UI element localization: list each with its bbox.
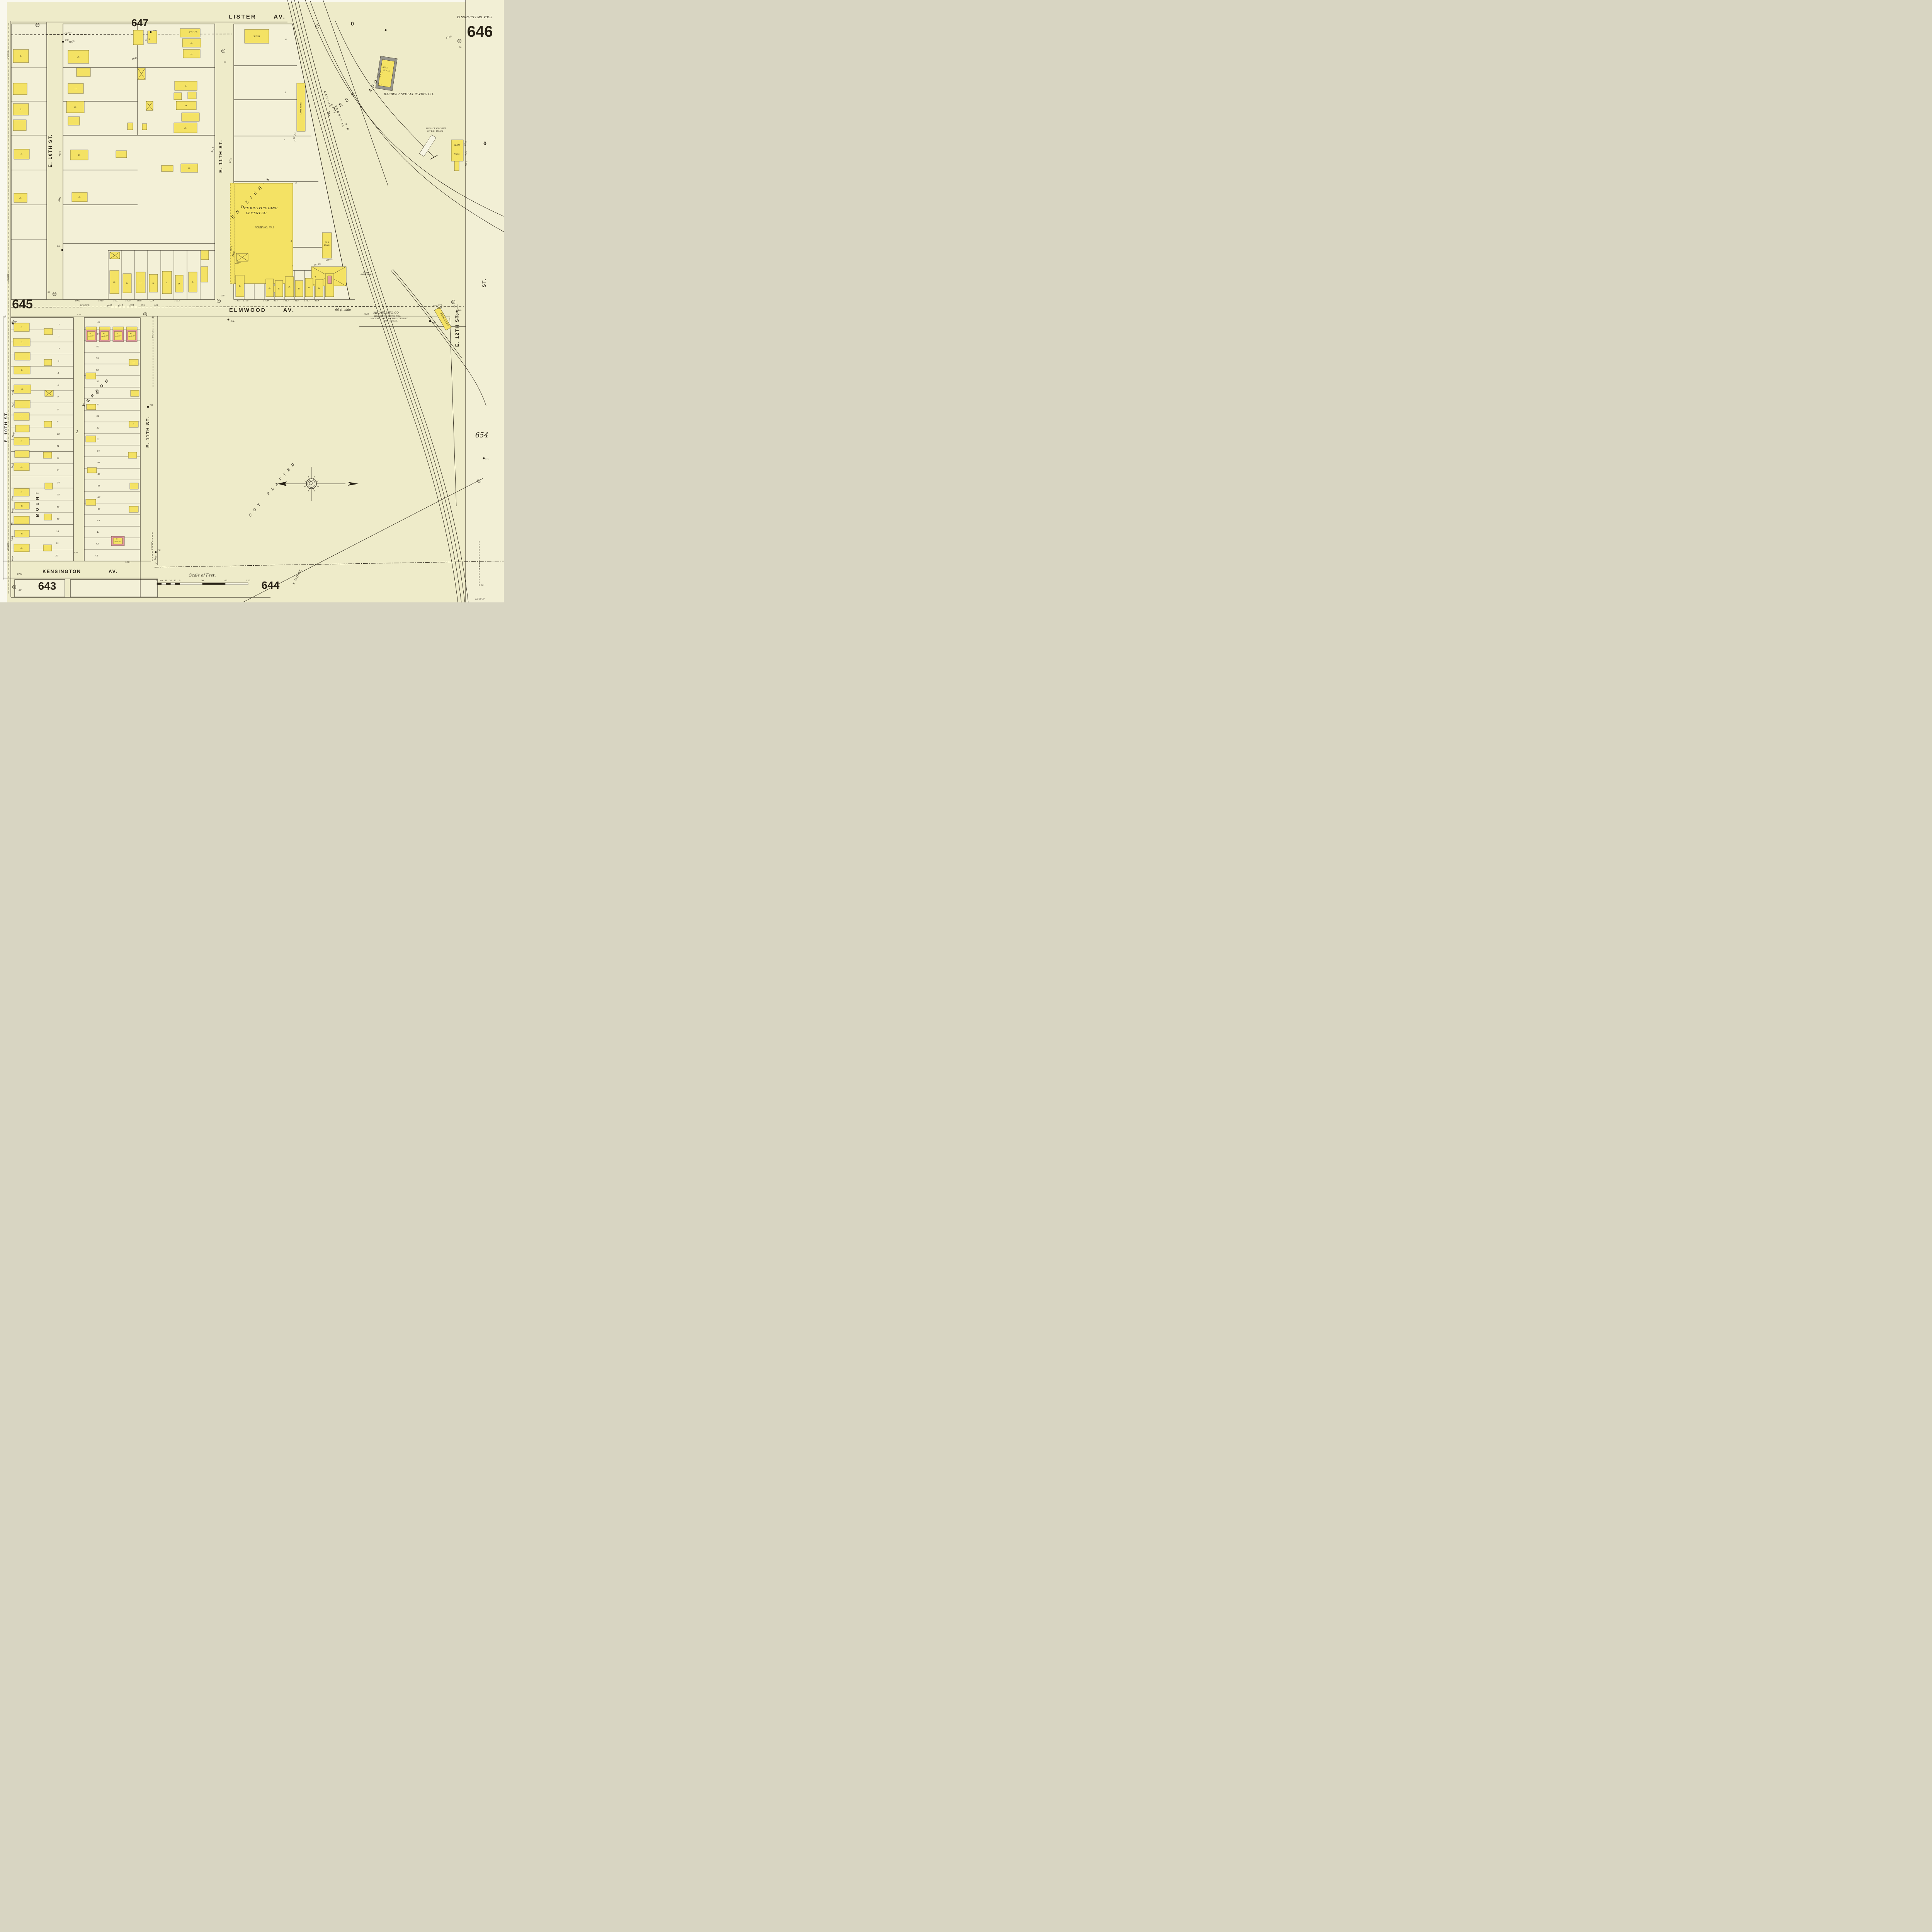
building-use-label: D. — [74, 106, 77, 109]
building — [15, 352, 30, 360]
map-label: T.H. — [458, 309, 462, 311]
map-label: 60 ft.wide — [335, 308, 351, 311]
map-label: 8 — [57, 409, 59, 411]
map-label: D. — [116, 332, 118, 334]
block-outline — [63, 24, 215, 299]
building-use-label: D. — [78, 196, 81, 199]
street-e11th-lower: E. 11TH ST. — [146, 417, 150, 448]
building — [230, 183, 235, 284]
map-label: MOUNT — [36, 489, 40, 517]
map-label: 50 — [224, 61, 226, 63]
hydrant-dot — [147, 406, 149, 408]
svg-text:50: 50 — [201, 580, 204, 582]
building-use-label: D. — [20, 369, 23, 372]
building-use-label: D. — [20, 466, 23, 468]
map-label: 50 — [48, 291, 50, 294]
building — [128, 123, 133, 130]
map-label: 2 — [290, 240, 292, 243]
svg-text:150: 150 — [246, 580, 250, 582]
map-label: ASPHALT MACHINE — [425, 128, 446, 130]
map-label: 6"W.PIPE. — [7, 51, 9, 59]
building-use-label: D. — [191, 281, 194, 284]
street-e11th-upper: E. 11TH ST. — [218, 139, 223, 173]
map-label: 50 — [97, 462, 100, 464]
map-label: COAL SHED — [300, 102, 302, 114]
map-label: 45 — [97, 520, 100, 522]
map-label: 47 — [97, 497, 100, 499]
building — [86, 327, 97, 330]
building-use-label: D. — [188, 167, 190, 170]
building — [162, 165, 173, 172]
hydrant-dot — [150, 31, 152, 33]
map-label: 49 — [97, 473, 100, 476]
building-use-label: D. — [20, 533, 23, 535]
map-label: 1 — [58, 324, 60, 326]
street-lister: LISTER — [229, 14, 256, 20]
map-label: 1033 — [174, 300, 180, 302]
map-label: 50' — [151, 316, 155, 319]
building-use-label: D. — [184, 85, 187, 87]
building — [43, 545, 52, 551]
map-label: D.H. — [153, 30, 158, 32]
map-label: T.H. — [157, 549, 161, 552]
map-label: A — [294, 140, 296, 142]
street-e10th-lower: E. 10TH ST. — [4, 411, 9, 442]
map-label: 1025 — [125, 300, 131, 302]
map-label: 3 — [58, 348, 60, 350]
map-label: D. — [130, 332, 132, 334]
map-label: D.H. — [65, 39, 70, 41]
building-use-label: D. — [178, 283, 180, 285]
map-label: 62 — [98, 321, 100, 324]
building — [116, 151, 127, 158]
map-label: T.H. — [57, 245, 61, 248]
map-label: 55 — [97, 404, 100, 406]
building — [131, 390, 139, 396]
map-label: BL.SM. — [454, 144, 461, 146]
map-label: 1125 — [364, 313, 369, 315]
map-label: 6"W.PIPE. — [189, 31, 198, 33]
mccain-label: McCAIN MFG. CO. — [373, 311, 399, 315]
building — [44, 421, 52, 427]
building — [44, 359, 52, 366]
building-use-label: D. — [20, 327, 23, 329]
map-label: D. — [89, 332, 91, 334]
building-use-label: D. — [238, 285, 241, 287]
building — [174, 93, 182, 100]
block-outline — [70, 580, 158, 597]
building-use-label: D. — [19, 197, 22, 199]
sheet-ref-647: 647 — [131, 17, 148, 29]
map-label: 6"W.PIPE. — [151, 541, 153, 549]
map-label: 58 — [96, 369, 99, 371]
map-label: 60 — [97, 346, 99, 348]
building — [182, 113, 199, 121]
map-label: W. HO. — [454, 153, 460, 155]
map-label: 19 — [56, 543, 59, 545]
sheet-ref-644: 644 — [262, 579, 280, 591]
map-label: 1001 — [17, 573, 22, 575]
map-label: 6"W.PIPE. — [7, 273, 9, 281]
map-label: 43 — [96, 543, 99, 545]
map-label: 53 — [97, 427, 100, 429]
map-label: 70' — [481, 584, 484, 587]
building — [99, 327, 110, 330]
map-label: AV. — [109, 569, 118, 574]
iola-cement-label: THE IOLA PORTLAND — [242, 206, 277, 210]
building-use-label: D. — [185, 105, 187, 107]
map-label: Scale of Feet. — [189, 573, 216, 578]
map-label: 125 — [154, 304, 158, 306]
map-canvas: D.D.D.D.D.D.D.D.D.D.D.D.D.D.D.D.D.D.D.D.… — [0, 0, 504, 602]
building — [235, 183, 293, 284]
map-label: 1001 — [75, 300, 80, 302]
building — [77, 68, 90, 77]
map-label: 20 — [55, 555, 58, 557]
map-label: KC1909 — [475, 598, 485, 600]
building — [87, 468, 97, 473]
building — [128, 452, 137, 458]
building-use-label: D. — [184, 127, 187, 129]
map-label: 11 — [57, 445, 60, 447]
map-label: ST. — [481, 278, 487, 287]
volume-label: KANSAS CITY MO. VOL.5 — [456, 16, 492, 19]
street-e10th-upper: E. 10TH ST. — [48, 134, 53, 168]
sanborn-map-sheet: Kansas City Mo. Vol.5 — Sheet 646 D.D.D.… — [0, 0, 504, 602]
building — [68, 117, 80, 125]
map-label: 5 — [284, 92, 286, 94]
hydrant-dot — [228, 319, 230, 321]
building — [43, 452, 52, 458]
building — [188, 92, 196, 99]
map-label: 46 — [97, 508, 100, 510]
map-label: 83 — [452, 301, 454, 303]
map-label: 10 — [57, 433, 60, 435]
map-label: 95 — [218, 300, 220, 302]
map-label: 61 — [97, 333, 100, 335]
map-label: 1113 — [283, 300, 289, 302]
building-use-label: D. — [74, 88, 77, 90]
sheet-ref-654: 654 — [475, 431, 488, 439]
sheet-number: 646 — [467, 23, 493, 40]
building-use-label: D. — [20, 440, 23, 443]
map-label: 6 — [58, 384, 59, 387]
street-kensington: KENSINGTON — [43, 569, 81, 574]
map-label: 12½ — [74, 551, 78, 554]
building-use-label: D. — [21, 388, 24, 391]
building-use-label: D. — [298, 288, 300, 290]
building — [126, 327, 137, 330]
map-label: ON R.R. TRUCK — [427, 130, 443, 133]
map-label: 18 — [56, 531, 59, 533]
building-use-label: D. — [132, 423, 135, 426]
building — [15, 400, 30, 408]
map-label: 1115 — [293, 300, 299, 302]
building-use-label: D. — [318, 287, 320, 290]
building-use-label: D. — [190, 53, 193, 55]
svg-text:10: 10 — [174, 580, 176, 582]
hydrant-dot — [429, 320, 431, 322]
map-label: 52 — [97, 439, 100, 441]
building-use-label: D. — [19, 55, 22, 58]
barber-asphalt-label: BARBER ASPHALT PAVING CO. — [383, 92, 434, 96]
map-label: 51 — [97, 450, 100, 452]
building — [451, 140, 463, 161]
building — [14, 516, 29, 524]
building — [130, 483, 138, 489]
hydrant-dot — [62, 41, 64, 43]
map-label: 44 — [97, 531, 100, 534]
map-label: MACHINERY. CHOP MACHINE. CORN ROLL. — [370, 318, 408, 320]
map-label: 5 — [58, 372, 59, 374]
map-label: 97 — [36, 24, 39, 26]
map-label: 12"W.PIPE. — [479, 561, 481, 570]
map-label: 1029 — [148, 300, 154, 302]
map-label: 97 — [316, 26, 318, 28]
building-use-label: D. — [78, 154, 80, 156]
building-use-label: D. — [77, 56, 80, 58]
map-label: 1015 — [98, 300, 104, 302]
building-use-label: D. — [132, 362, 135, 364]
building-use-label: D. — [288, 286, 291, 288]
building — [133, 30, 143, 45]
map-label: 11 — [379, 84, 382, 87]
building-use-label: D. — [190, 42, 193, 44]
map-label: 56 — [96, 392, 99, 395]
hydrant-dot — [155, 551, 157, 553]
map-label: AV. — [283, 307, 295, 313]
map-label: 70' — [459, 46, 462, 49]
building-use-label: D. — [20, 416, 23, 418]
map-label: 70 — [458, 40, 461, 43]
map-label: 1119 — [313, 300, 319, 302]
building-use-label: D. — [126, 282, 128, 285]
map-label: D.H. — [432, 322, 437, 324]
map-label: 0 — [351, 20, 354, 27]
building-use-label: D. — [308, 287, 310, 289]
map-label: 15 — [57, 494, 60, 496]
map-label: GASOL. TANK — [361, 273, 372, 275]
building — [15, 425, 29, 432]
building — [86, 373, 96, 379]
sheet-ref-645: 645 — [12, 297, 32, 311]
building — [86, 436, 96, 442]
map-label: 17 — [57, 518, 60, 520]
map-label: AV. — [274, 14, 286, 20]
building-use-label: D. — [19, 109, 22, 111]
svg-text:50: 50 — [156, 580, 158, 582]
map-label: 54 — [97, 415, 99, 418]
map-label: D. — [116, 538, 118, 540]
building-use-label: D. — [20, 547, 23, 549]
building — [44, 514, 52, 520]
building-use-label: D. — [139, 282, 142, 284]
map-label: 14 — [57, 482, 60, 484]
map-label: A. — [155, 562, 157, 565]
map-label: D. — [103, 332, 105, 334]
map-label: 16 — [57, 506, 60, 509]
map-label: 6"W.PIPE. — [7, 542, 9, 550]
map-label: 99 — [478, 480, 480, 482]
building — [45, 483, 53, 489]
map-label: 110 — [53, 293, 56, 295]
building — [328, 276, 332, 284]
building-use-label: D. — [20, 153, 23, 156]
map-label: 1021 — [113, 300, 119, 302]
map-label: 2 — [58, 336, 60, 338]
building — [13, 83, 27, 95]
map-label: 50' — [19, 589, 22, 592]
map-label: 59 — [96, 357, 99, 360]
building — [113, 327, 124, 330]
map-label: 1 — [291, 265, 293, 268]
svg-text:30: 30 — [165, 580, 167, 582]
svg-text:0: 0 — [179, 580, 180, 582]
building-use-label: D. — [268, 287, 271, 289]
map-label: 1021 — [125, 561, 131, 564]
map-label: 12 — [57, 457, 60, 460]
building — [87, 404, 96, 410]
building — [13, 120, 26, 131]
map-label: WARE HO. Nº 2 — [255, 226, 274, 229]
building — [44, 328, 53, 335]
map-label: 95 — [222, 50, 224, 52]
block-outline — [11, 24, 47, 299]
map-label: 9 — [57, 421, 58, 423]
map-label: 12½ — [77, 313, 81, 316]
map-label: 2 — [314, 276, 316, 279]
map-label: 1027 — [137, 300, 142, 302]
building — [148, 31, 157, 43]
map-label: 50' — [221, 295, 224, 297]
hydrant-dot — [483, 457, 485, 459]
map-label: 42 — [95, 555, 98, 557]
map-label: 13 — [57, 469, 60, 472]
map-label: D.H. — [230, 320, 235, 323]
map-label: 106 — [13, 586, 16, 588]
building — [201, 250, 209, 260]
map-label: 1101 — [235, 300, 241, 302]
street-elmwood: ELMWOOD — [229, 307, 266, 313]
map-label: 0 — [483, 140, 486, 146]
building-use-label: D. — [20, 492, 23, 494]
map-label: D.H. — [485, 458, 489, 460]
map-label: 4 — [284, 139, 286, 141]
map-label: 2 — [76, 430, 78, 434]
map-label: T.H. — [150, 404, 153, 406]
map-label: 1105 — [243, 300, 248, 302]
map-label: 103 — [144, 313, 147, 316]
map-label: 6"W.PIPE. — [152, 330, 154, 338]
hydrant-dot — [385, 29, 387, 31]
svg-text:20: 20 — [169, 580, 172, 582]
building-use-label: D. — [165, 282, 168, 284]
map-label: VEND.1ST — [114, 541, 121, 543]
building-use-label: D. — [113, 281, 116, 284]
map-label: CEMENT CO. — [246, 211, 267, 215]
map-label: SHED — [253, 36, 260, 38]
map-label: 12"W.PIPE. — [456, 309, 458, 318]
hydrant-dot — [61, 249, 63, 251]
building — [142, 124, 147, 130]
building-use-label: D. — [20, 342, 23, 344]
map-label: HEAT: STOVES. LIGHTS: ELEC. — [374, 315, 401, 317]
sheet-ref-643: 643 — [38, 580, 56, 592]
svg-text:100: 100 — [223, 580, 227, 582]
map-label: 6 — [285, 39, 287, 41]
building-use-label: D. — [20, 505, 23, 507]
svg-text:40: 40 — [160, 580, 163, 582]
map-label: D.H. — [13, 321, 18, 323]
building-use-label: D. — [277, 288, 280, 290]
building — [454, 161, 459, 171]
building — [129, 506, 138, 512]
map-label: 1111 — [272, 300, 278, 302]
map-label: 1109 — [263, 300, 269, 302]
map-label: 7 — [57, 396, 59, 399]
building — [201, 267, 208, 282]
map-label: 57 — [97, 381, 99, 383]
building — [15, 451, 29, 457]
building — [86, 499, 96, 505]
map-label: 3 — [295, 182, 297, 185]
map-label: 1117 — [304, 300, 310, 302]
building-use-label: D. — [152, 282, 155, 285]
map-label: 48 — [97, 485, 100, 487]
map-label: CORN CLEANER. — [383, 320, 398, 322]
map-label: TILE — [325, 241, 329, 244]
map-label: W. HO. — [324, 244, 330, 247]
map-label: 4 — [58, 360, 60, 362]
